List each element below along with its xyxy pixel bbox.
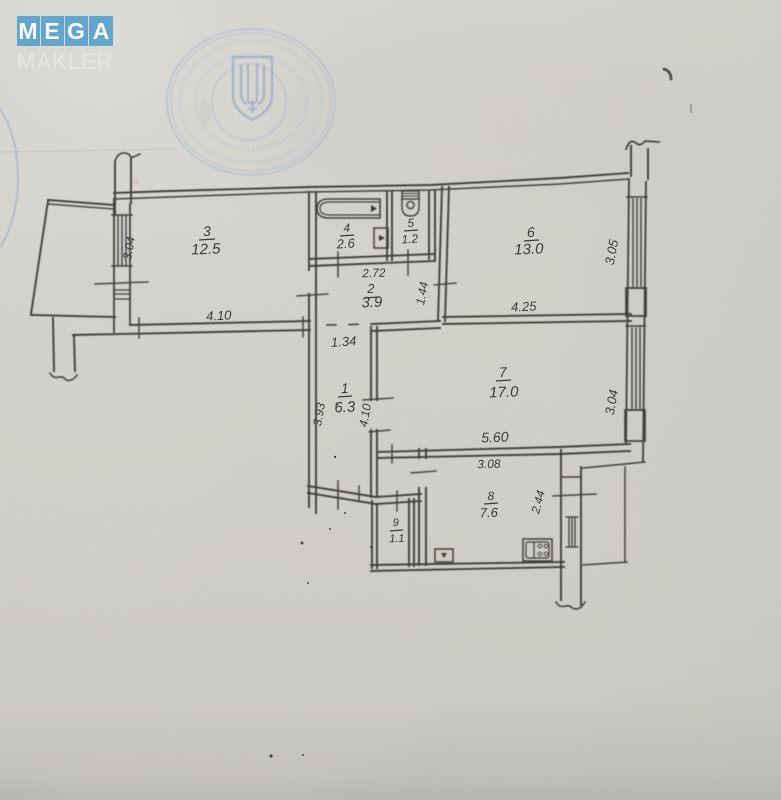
svg-text:1.34: 1.34	[330, 333, 356, 350]
svg-text:4.10: 4.10	[206, 307, 233, 323]
svg-text:4.25: 4.25	[511, 298, 538, 314]
svg-text:2.6: 2.6	[335, 236, 356, 252]
svg-text:M: M	[18, 18, 37, 44]
svg-text:3: 3	[203, 223, 212, 239]
svg-text:E: E	[44, 18, 59, 44]
svg-text:1: 1	[340, 380, 349, 396]
svg-text:G: G	[67, 18, 85, 44]
svg-text:5: 5	[407, 216, 415, 230]
svg-text:6.3: 6.3	[334, 398, 356, 416]
svg-text:13.0: 13.0	[514, 240, 544, 258]
svg-text:MAKLER: MAKLER	[17, 49, 113, 74]
svg-text:3.08: 3.08	[477, 457, 501, 472]
svg-text:6: 6	[527, 224, 536, 240]
svg-text:9: 9	[393, 517, 400, 529]
svg-text:A: A	[93, 18, 110, 44]
svg-text:7.6: 7.6	[480, 505, 499, 521]
svg-text:2.72: 2.72	[361, 266, 386, 281]
svg-text:3.9: 3.9	[361, 294, 383, 312]
svg-text:5.60: 5.60	[481, 429, 509, 446]
svg-text:1.2: 1.2	[401, 232, 419, 247]
svg-text:12.5: 12.5	[191, 240, 221, 258]
svg-text:8: 8	[487, 489, 494, 503]
svg-text:1.1: 1.1	[389, 533, 405, 546]
svg-text:17.0: 17.0	[489, 383, 519, 401]
svg-text:4: 4	[343, 221, 351, 235]
